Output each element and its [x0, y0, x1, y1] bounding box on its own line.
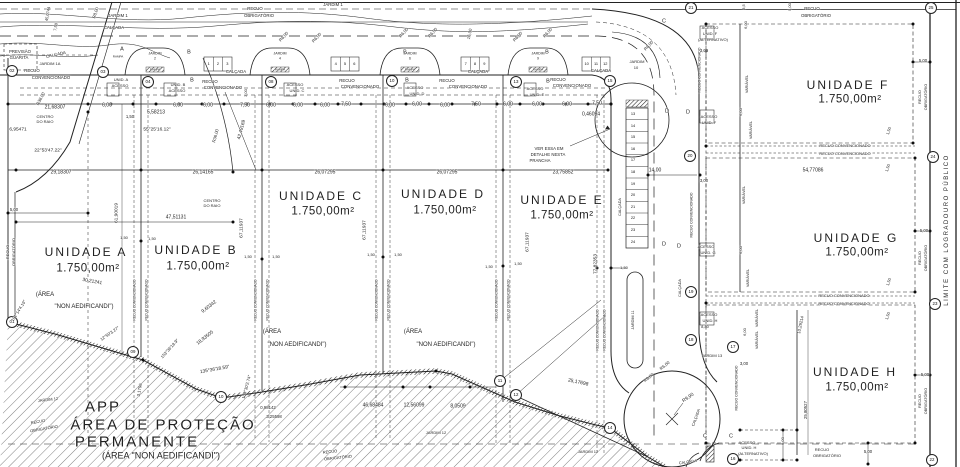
plan-linework — [0, 0, 960, 467]
app-hatched-area — [0, 322, 665, 467]
site-plan-drawing: 0203040810131521252024192318171622140109… — [0, 0, 960, 467]
